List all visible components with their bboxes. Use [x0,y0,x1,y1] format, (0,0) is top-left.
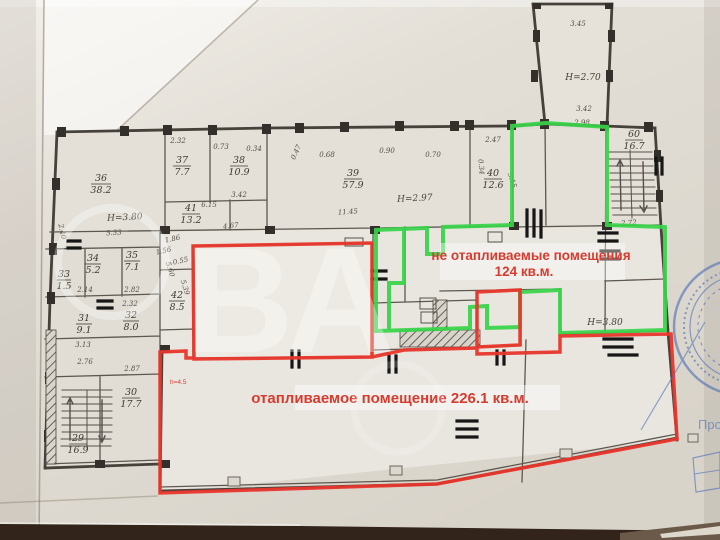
heated-label: отапливаемое помещение 226.1 кв.м. [251,390,529,407]
hatched-wall [46,330,56,464]
room-number: 34 [87,253,99,264]
dimension: 0.90 [379,147,395,155]
room-number: 42 [170,290,183,301]
room-number: 29 [71,433,84,444]
room-number: 30 [125,387,137,398]
height-note-red: h=4.5 [170,379,187,386]
dimension: 3.42 [231,191,247,199]
dimension: 3.42 [576,105,592,113]
unheated-label-line2: 124 кв.м. [495,264,554,279]
room-number: 38 [233,155,245,166]
room-number: 40 [486,168,499,179]
room-area: 7.7 [174,167,190,178]
dimension: 3.45 [570,20,586,28]
room-31-label: 319.1 [76,313,92,336]
room-area: 8.0 [123,322,138,333]
room-number: 60 [628,129,640,140]
room-number: 41 [184,203,197,214]
dimension: 2.87 [123,365,140,373]
height-right: Н=3.80 [586,318,623,328]
room-area: 38.2 [90,185,111,196]
hatched-corridor [400,330,480,347]
dimension: 2.47 [484,136,501,144]
watermark-letters: ВА [185,216,394,384]
stamp-partial-text: Про [698,417,720,432]
room-area: 12.6 [482,180,503,191]
dimension: 0.70 [425,151,441,159]
dimension: 2.82 [123,286,140,294]
dimension: 2.32 [169,137,186,145]
room-34-label: 345.2 [85,253,101,276]
room-area: 16.9 [67,445,88,456]
room-number: 35 [126,250,138,261]
floorplan-photo: 3638.2 377.7 3810.9 3957.9 4012.6 4113.2… [0,0,720,540]
dimension: 0.34 [476,159,485,175]
hatched-block [433,300,447,330]
room-area: 17.7 [120,399,142,410]
room-area: 57.9 [342,180,363,191]
room-42-label: 428.5 [169,290,185,313]
room-35-label: 357.1 [124,250,140,273]
height-corridor: Н=2.70 [564,73,601,83]
dimension: 2.76 [76,358,93,366]
room-number: 39 [347,168,359,179]
height-room39: Н=2.97 [396,193,433,205]
dimension: 3.13 [75,341,91,349]
unheated-label-line1: не отапливаемые помещения [431,248,630,263]
dimension: 2.14 [76,286,93,294]
dimension: 0.68 [319,151,335,159]
paper-left-band [0,0,36,540]
floorplan-drawing: 3638.2 377.7 3810.9 3957.9 4012.6 4113.2… [0,0,720,540]
dimension: 5.33 [106,229,123,238]
room-area: 5.2 [85,265,100,276]
room-area: 9.1 [76,325,91,336]
dimension: 0.73 [213,143,229,151]
room-number: 36 [95,173,107,184]
dimension: 0.34 [246,145,262,153]
room-number: 37 [176,155,189,166]
room-area: 16.7 [623,141,645,152]
room-area: 8.5 [169,302,184,313]
room-area: 10.9 [228,167,249,178]
dimension: 6.15 [201,201,217,209]
room-area: 7.1 [124,262,139,273]
